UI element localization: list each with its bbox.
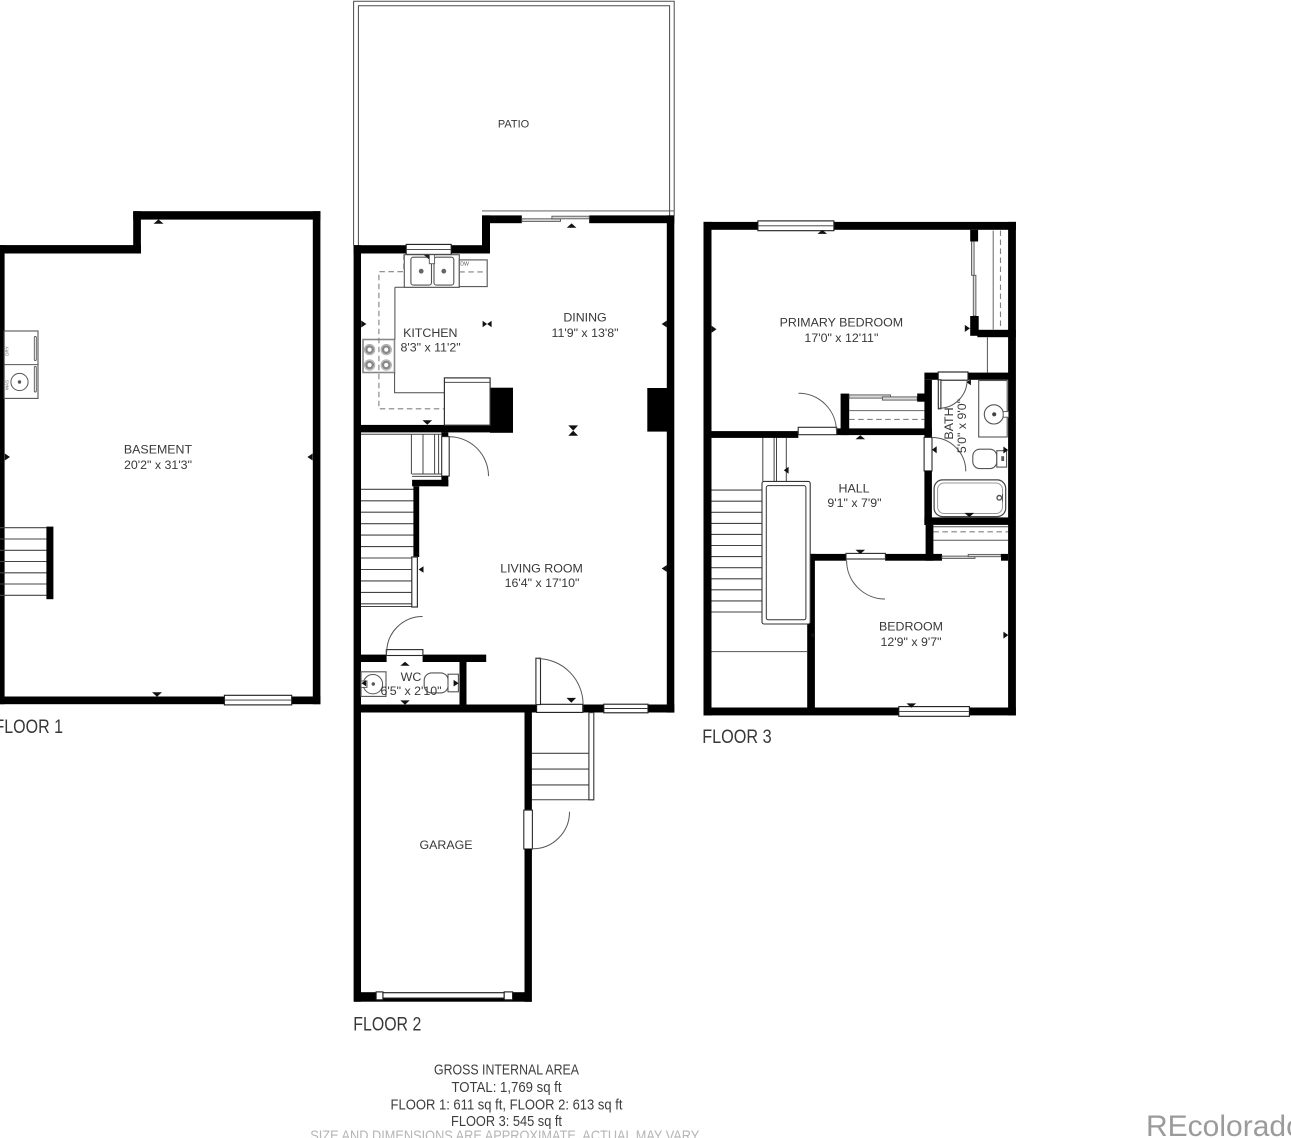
svg-text:GROSS INTERNAL AREA: GROSS INTERNAL AREA [434, 1063, 579, 1079]
svg-text:FLOOR 1: 611 sq ft, FLOOR 2: 6: FLOOR 1: 611 sq ft, FLOOR 2: 613 sq ft [391, 1097, 623, 1113]
svg-text:PATIO: PATIO [498, 118, 530, 130]
svg-text:LIVING ROOM: LIVING ROOM [500, 562, 583, 576]
svg-text:17'0" x 12'11": 17'0" x 12'11" [804, 331, 878, 345]
svg-text:FLOOR 3: 545 sq ft: FLOOR 3: 545 sq ft [451, 1114, 562, 1130]
svg-text:16'4" x 17'10": 16'4" x 17'10" [505, 576, 580, 590]
svg-text:BEDROOM: BEDROOM [879, 620, 943, 634]
svg-text:REcolorado: REcolorado [1146, 1110, 1291, 1138]
svg-text:SIZE AND DIMENSIONS ARE APPROX: SIZE AND DIMENSIONS ARE APPROXIMATE, ACT… [310, 1129, 699, 1138]
svg-text:WAS: WAS [5, 380, 10, 390]
svg-text:DW: DW [460, 262, 469, 268]
svg-text:HALL: HALL [839, 482, 870, 496]
svg-text:DINING: DINING [563, 311, 606, 325]
svg-text:11'9" x 13'8": 11'9" x 13'8" [551, 326, 618, 340]
svg-text:5'0" x 9'0": 5'0" x 9'0" [955, 399, 969, 453]
svg-text:FLOOR 2: FLOOR 2 [353, 1015, 421, 1036]
svg-text:PRIMARY BEDROOM: PRIMARY BEDROOM [780, 316, 903, 330]
svg-text:KITCHEN: KITCHEN [403, 326, 457, 340]
svg-text:8'3" x 11'2": 8'3" x 11'2" [401, 341, 461, 355]
svg-text:TOTAL: 1,769 sq ft: TOTAL: 1,769 sq ft [452, 1080, 562, 1096]
svg-text:20'2" x 31'3": 20'2" x 31'3" [124, 458, 192, 472]
svg-text:FLOOR 1: FLOOR 1 [0, 717, 63, 738]
svg-text:DRY: DRY [5, 346, 10, 355]
svg-text:WC: WC [401, 670, 422, 684]
svg-text:12'9" x 9'7": 12'9" x 9'7" [880, 635, 941, 649]
svg-text:FLOOR 3: FLOOR 3 [702, 727, 772, 748]
svg-text:GARAGE: GARAGE [419, 838, 472, 852]
svg-text:9'1" x 7'9": 9'1" x 7'9" [827, 496, 881, 510]
svg-text:BATH: BATH [942, 407, 956, 439]
svg-text:BASEMENT: BASEMENT [124, 442, 193, 456]
svg-text:6'5" x 2'10": 6'5" x 2'10" [380, 684, 441, 698]
